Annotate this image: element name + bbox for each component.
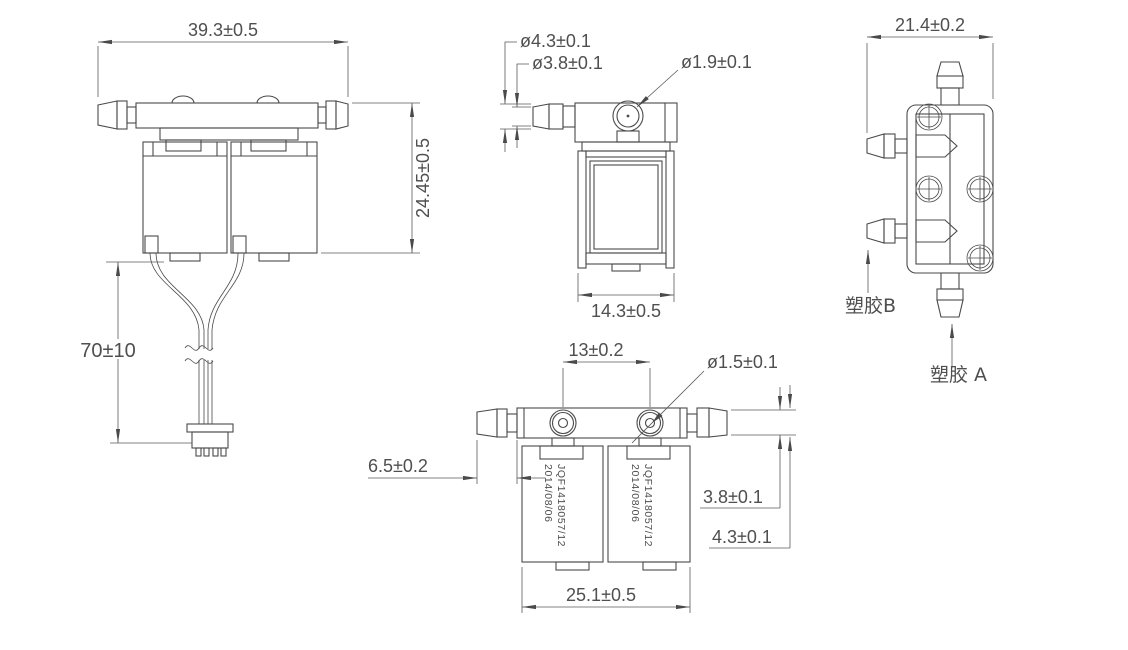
end-left-barb-lower bbox=[867, 219, 884, 243]
dim-port-spacing bbox=[563, 362, 650, 407]
bottom-port-left bbox=[550, 410, 576, 436]
bottom-left-barb bbox=[477, 409, 497, 437]
bottom-view: JQF1418057/12 2014/08/06 JQF1418057/12 2… bbox=[368, 340, 796, 613]
drawing-sheet: 39.3±0.5 24.45±0.5 70±10 bbox=[0, 0, 1128, 650]
end-body bbox=[867, 62, 993, 317]
bottom-manifold-bar bbox=[517, 408, 687, 438]
dim-body-width-label: 25.1±0.5 bbox=[566, 585, 636, 605]
front-right-barb bbox=[336, 101, 348, 129]
dim-front-width bbox=[98, 42, 348, 97]
side-barb bbox=[533, 104, 549, 129]
dim-barb-od bbox=[500, 42, 531, 152]
screw-icon bbox=[916, 104, 942, 130]
bottom-manifold bbox=[477, 408, 727, 570]
screw-icon bbox=[967, 245, 993, 271]
screw-icon bbox=[967, 176, 993, 202]
dim-body-depth-label: 14.3±0.5 bbox=[591, 301, 661, 321]
bottom-right-barb bbox=[709, 408, 727, 437]
dim-port-hole-leader bbox=[637, 70, 678, 107]
dim-end-width-label: 21.4±0.2 bbox=[895, 15, 965, 35]
dim-barb-od-bottom-label: 4.3±0.1 bbox=[712, 527, 772, 547]
dim-barb-tip-od-label: ø3.8±0.1 bbox=[532, 53, 603, 73]
dim-bottom-hole-label: ø1.5±0.1 bbox=[707, 352, 778, 372]
dim-barb-tip-od-bottom-label: 3.8±0.1 bbox=[703, 487, 763, 507]
dim-body-depth bbox=[578, 273, 674, 302]
front-manifold bbox=[98, 96, 348, 261]
wire-harness bbox=[150, 253, 244, 424]
end-view: 21.4±0.2 塑胶B 塑胶 A bbox=[845, 15, 993, 386]
dim-barb-tip-od bbox=[512, 64, 531, 148]
phillips-screws bbox=[916, 104, 993, 271]
side-coil-left-wall bbox=[578, 151, 586, 268]
dim-port-spacing-label: 13±0.2 bbox=[569, 340, 624, 360]
dim-barb-length-label: 6.5±0.2 bbox=[368, 456, 428, 476]
end-top-barb bbox=[937, 62, 963, 105]
dim-front-width-label: 39.3±0.5 bbox=[188, 20, 258, 40]
coil-marking-line2: 2014/08/06 bbox=[629, 464, 641, 523]
dim-end-width bbox=[867, 37, 993, 133]
front-left-barb bbox=[98, 101, 117, 129]
end-bottom-barb bbox=[937, 273, 963, 317]
screw-icon bbox=[916, 176, 942, 202]
plastic-a-label: 塑胶 A bbox=[930, 364, 987, 386]
dim-port-hole-label: ø1.9±0.1 bbox=[681, 52, 752, 72]
coil-marking-line1: JQF1418057/12 bbox=[555, 464, 567, 547]
coil-marking-line2: 2014/08/06 bbox=[542, 464, 554, 523]
dim-front-height-label: 24.45±0.5 bbox=[413, 138, 433, 218]
side-body bbox=[533, 101, 677, 271]
coil-marking-line1: JQF1418057/12 bbox=[642, 464, 654, 547]
engineering-drawing: 39.3±0.5 24.45±0.5 70±10 bbox=[0, 0, 1128, 650]
dim-barb-od-label: ø4.3±0.1 bbox=[520, 31, 591, 51]
side-coil-right-wall bbox=[666, 151, 674, 268]
side-view: ø4.3±0.1 ø3.8±0.1 ø1.9±0.1 14.3±0.5 bbox=[500, 31, 752, 321]
front-view: 39.3±0.5 24.45±0.5 70±10 bbox=[78, 20, 433, 456]
front-manifold-bar bbox=[136, 103, 318, 128]
dim-wire-length-label: 70±10 bbox=[80, 340, 135, 362]
plastic-b-label: 塑胶B bbox=[845, 295, 896, 317]
wire-connector bbox=[187, 424, 233, 456]
end-left-barb-upper bbox=[867, 134, 884, 158]
